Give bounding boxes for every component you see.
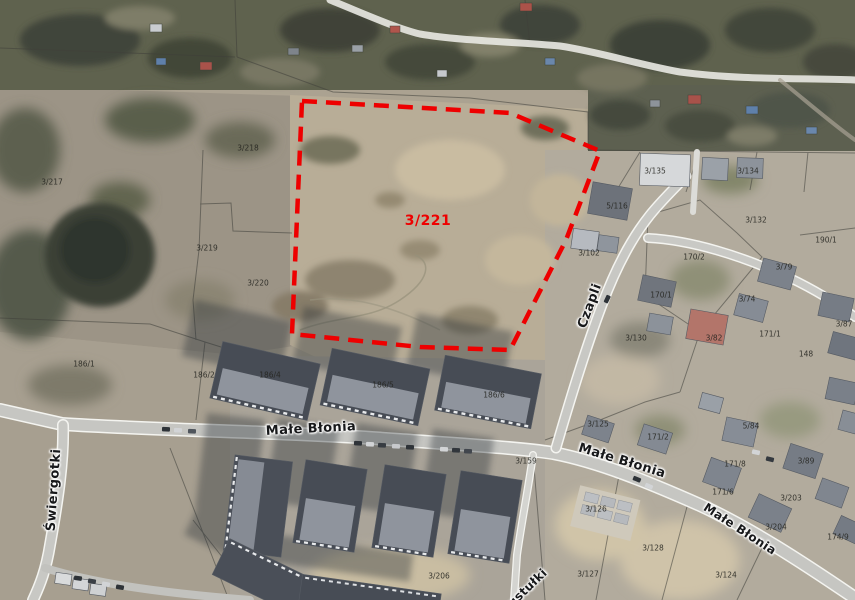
map-graphics <box>0 0 855 600</box>
apartment-block <box>372 465 446 558</box>
apartment-block <box>448 471 522 564</box>
apartment-block <box>293 460 367 553</box>
driveway <box>693 152 697 212</box>
highlighted-parcel-label: 3/221 <box>405 213 452 229</box>
aerial-map[interactable]: Małe BłoniaMałe BłoniaMałe BłoniaCzapliŚ… <box>0 0 855 600</box>
